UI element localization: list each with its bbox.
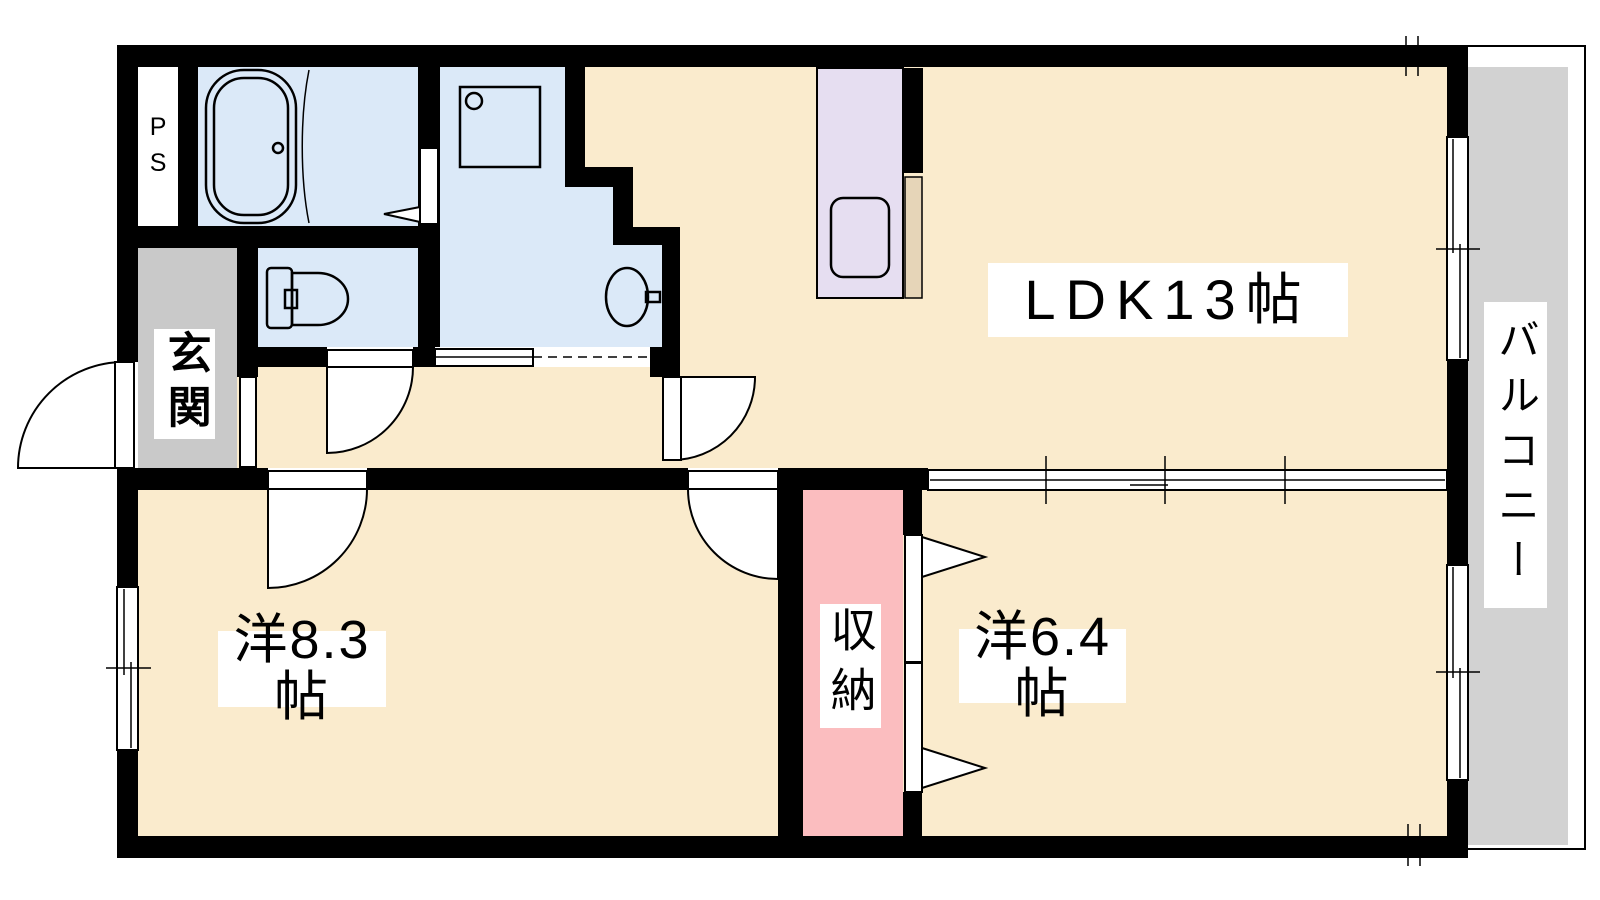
floor-plan-drawing xyxy=(0,0,1600,900)
toilet-floor xyxy=(258,247,418,347)
entrance-door xyxy=(18,362,134,468)
label-pipe-space: PS xyxy=(138,103,178,195)
label-western-room-small: 洋6.4帖 xyxy=(959,629,1126,703)
washroom-sliding-door xyxy=(435,349,650,366)
label-ldk: LDK13帖 xyxy=(988,263,1348,337)
floor-plan: LDK13帖 洋8.3帖 洋6.4帖 収納 玄関 バルコニー PS xyxy=(0,0,1600,900)
label-western-room-large: 洋8.3帖 xyxy=(218,631,386,707)
label-balcony: バルコニー xyxy=(1484,302,1547,608)
bathroom-floor xyxy=(198,67,418,226)
label-storage: 収納 xyxy=(820,604,881,728)
entrance-step-edge xyxy=(240,377,256,467)
washroom-floor-step xyxy=(565,187,613,347)
washbasin-nook-floor xyxy=(613,245,662,347)
label-entrance: 玄関 xyxy=(154,329,215,439)
